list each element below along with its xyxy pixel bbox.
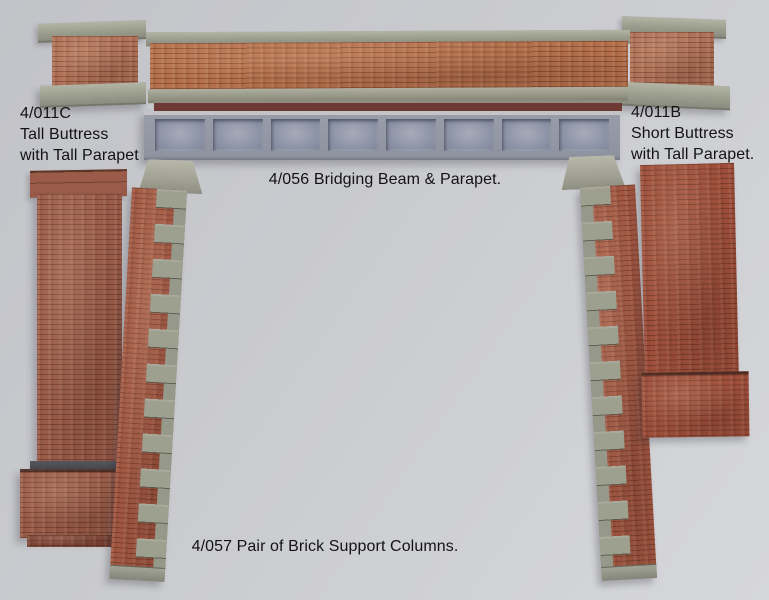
beam-panel [444, 119, 494, 151]
tall-buttress-shaft [37, 194, 122, 464]
right-column-foot [601, 564, 657, 581]
short-buttress-name-line: Short Buttress [631, 123, 754, 144]
short-buttress-code: 4/011B [631, 102, 754, 123]
beam-panel [155, 119, 205, 151]
parapet-rear-ledge [154, 100, 622, 111]
model-kit-product-photo: 4/011C Tall Buttress with Tall Parapet 4… [0, 0, 769, 600]
tall-buttress-plinth [27, 535, 118, 547]
tall-buttress-name-line: with Tall Parapet [20, 145, 139, 166]
beam-panel [386, 119, 436, 151]
beam-panel [213, 119, 263, 151]
short-buttress-name-line: with Tall Parapet. [631, 144, 754, 165]
left-column-stone-quoins [134, 189, 187, 582]
tall-buttress-base [20, 469, 124, 538]
short-buttress-shaft [640, 163, 739, 375]
beam-panel [502, 119, 552, 151]
left-column-foot [109, 565, 165, 582]
beam-panel [559, 119, 609, 151]
beam-panel [271, 119, 321, 151]
beam-panel [328, 119, 378, 151]
bridging-beam [144, 111, 620, 160]
short-buttress-label: 4/011B Short Buttress with Tall Parapet. [631, 102, 754, 165]
right-column-stone-quoins [580, 186, 632, 581]
short-buttress-base [642, 371, 750, 437]
short-parapet-end-block-brick-face [630, 32, 714, 88]
parapet-brick-wall [150, 41, 628, 92]
tall-parapet-end-block-brick-face [52, 36, 138, 88]
tall-buttress-code: 4/011C [20, 103, 139, 124]
support-columns-label: 4/057 Pair of Brick Support Columns. [115, 536, 535, 557]
tall-buttress-name-line: Tall Buttress [20, 124, 139, 145]
tall-buttress-label: 4/011C Tall Buttress with Tall Parapet [20, 103, 139, 166]
bridging-beam-label: 4/056 Bridging Beam & Parapet. [150, 169, 620, 190]
